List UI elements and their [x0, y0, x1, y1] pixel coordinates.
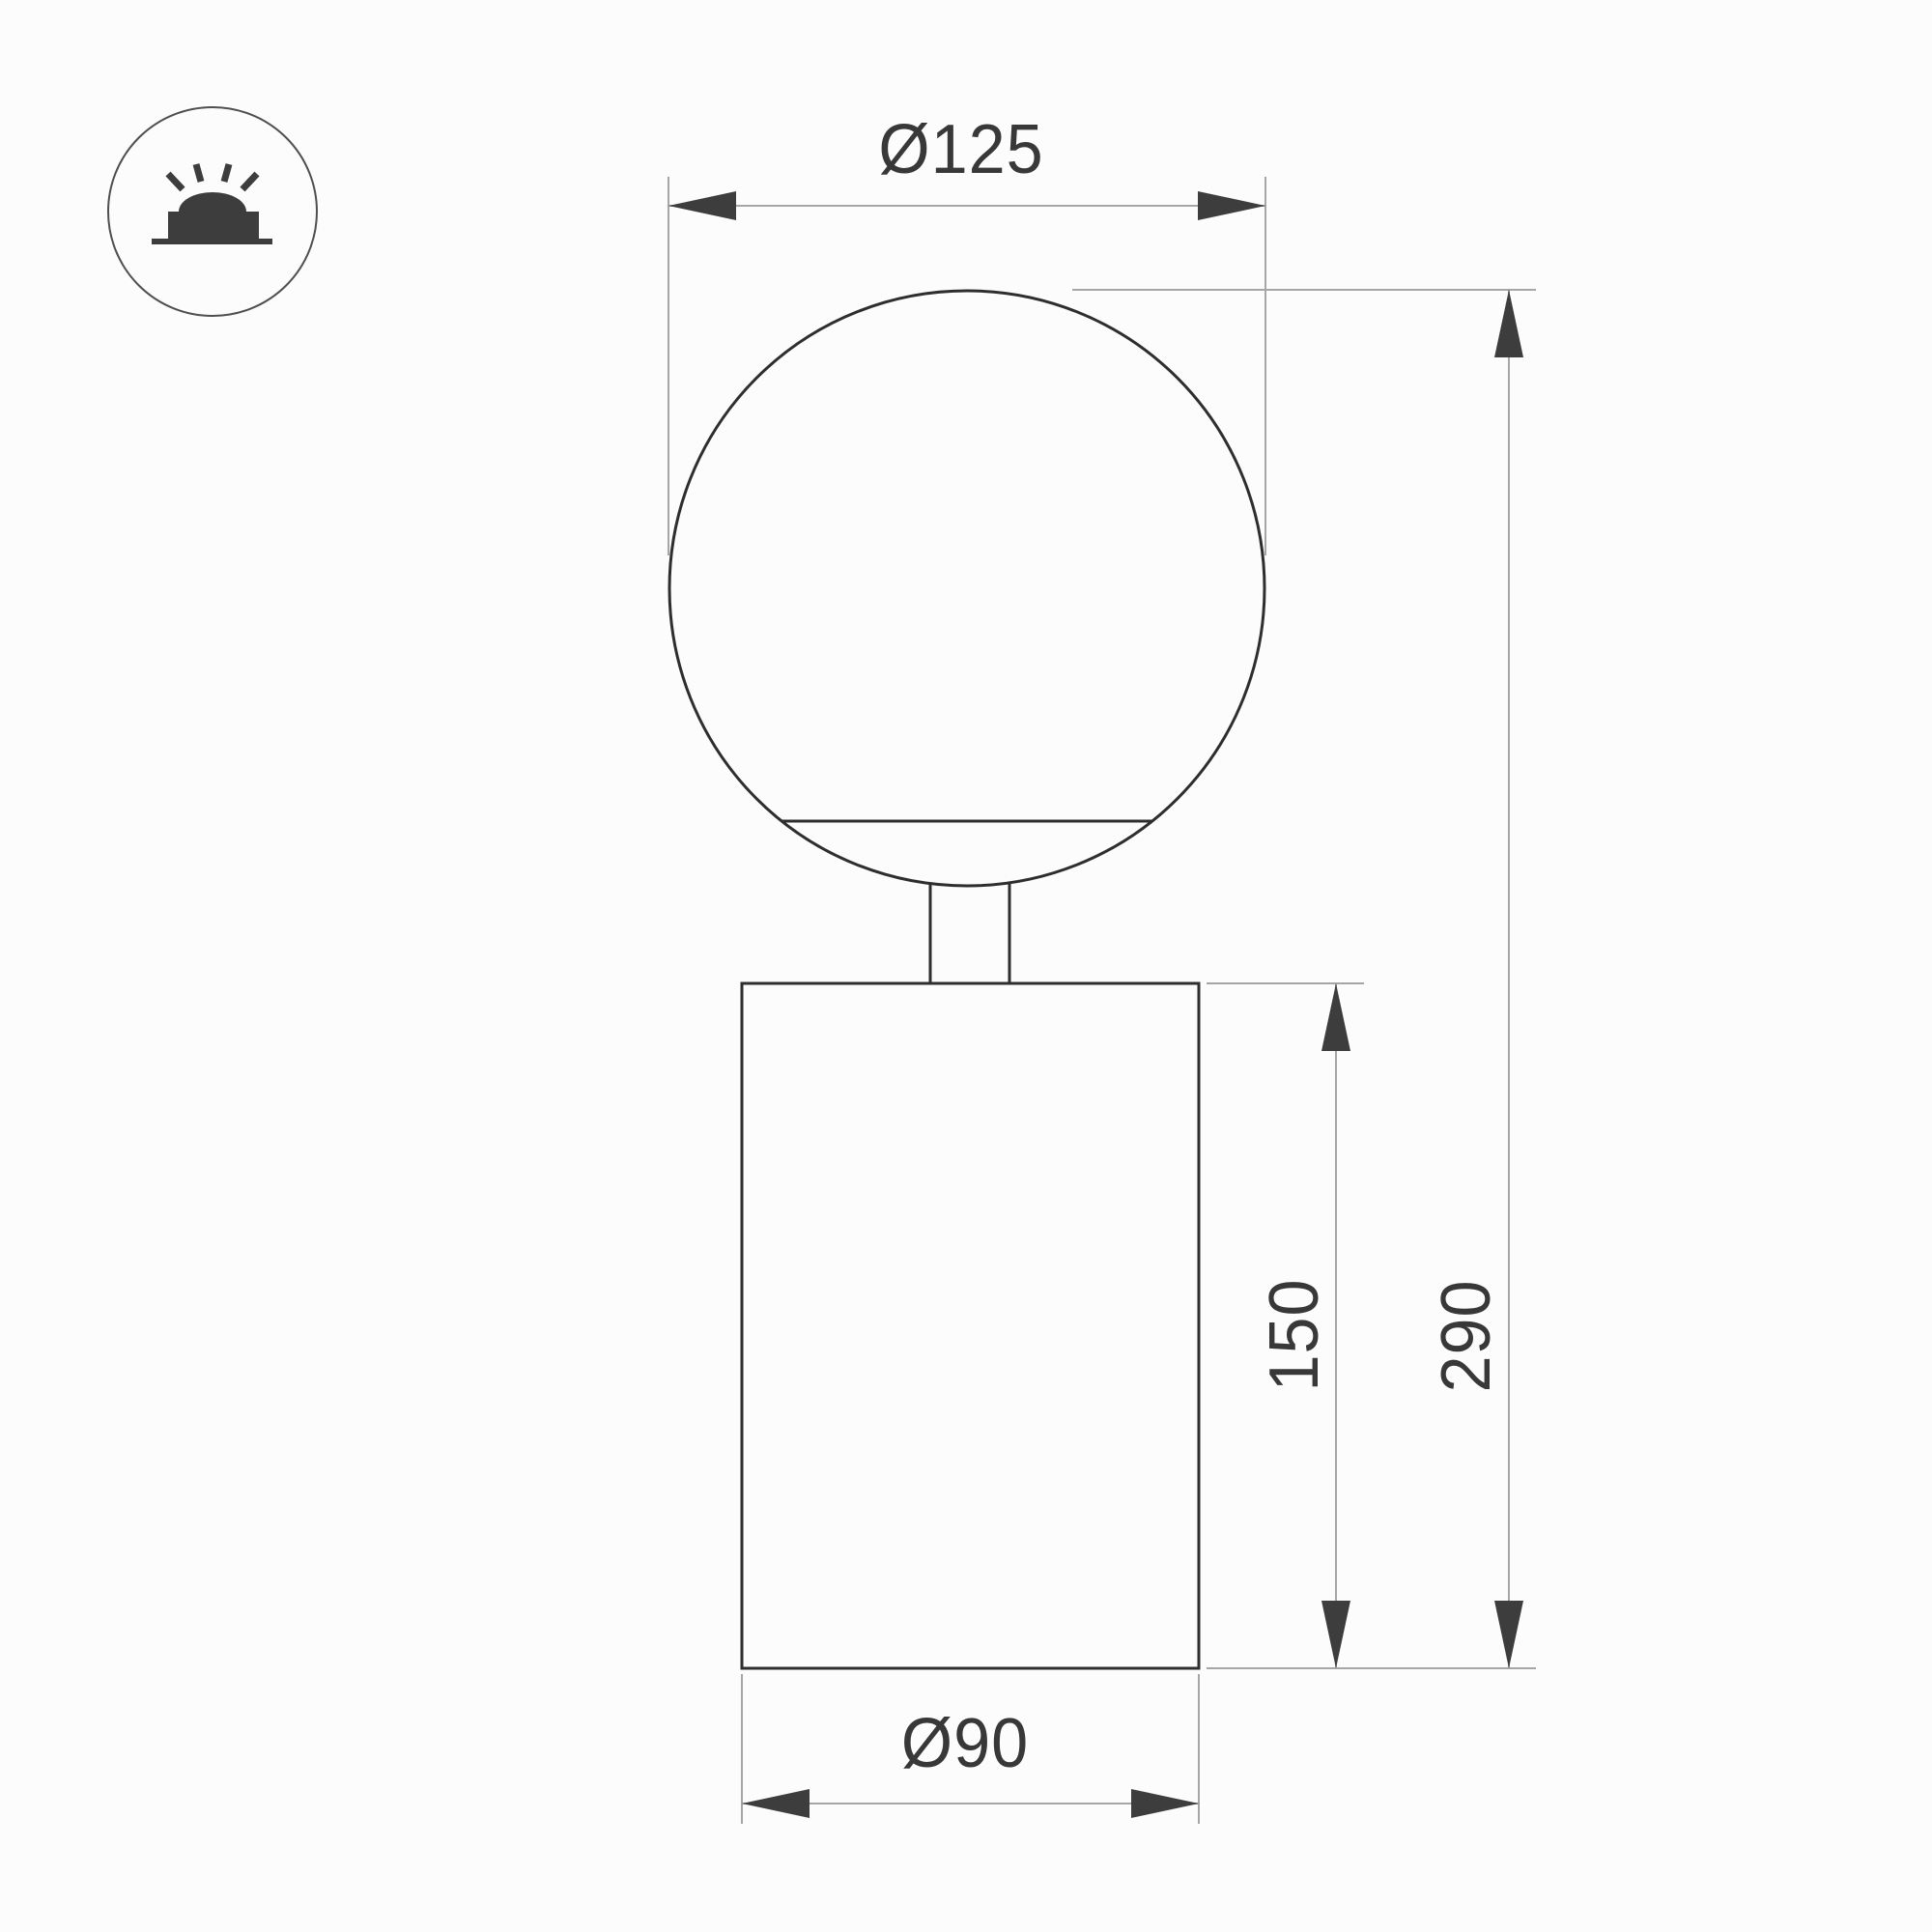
lamp-ground-line — [152, 239, 272, 244]
arrow-down-icon — [1321, 1601, 1350, 1668]
dimension-label-total-height: 290 — [1432, 1280, 1501, 1393]
lamp-base-shape — [168, 212, 259, 239]
drawing-svg — [0, 0, 1932, 1932]
dimension-label-body-height: 150 — [1260, 1279, 1329, 1392]
globe-shade-outline — [669, 291, 1264, 886]
luminaire-outline — [669, 291, 1264, 1668]
lamp-dome-shape — [179, 192, 246, 212]
arrow-right-icon — [1198, 191, 1265, 220]
dim-sphere-diameter — [668, 177, 1265, 555]
light-ray-right-inner — [224, 164, 229, 182]
light-ray-left-inner — [196, 164, 201, 182]
arrow-left-icon — [668, 191, 736, 220]
body-cylinder-outline — [742, 983, 1199, 1668]
light-ray-right-outer — [242, 174, 257, 189]
dim-total-height — [1072, 290, 1536, 1668]
technical-drawing-canvas: Ø125 290 150 Ø90 — [0, 0, 1932, 1932]
arrow-up-icon — [1321, 983, 1350, 1051]
dimension-label-body-diameter: Ø90 — [901, 1709, 1029, 1778]
arrow-down-icon — [1494, 1601, 1523, 1668]
light-rays-icon — [168, 164, 257, 189]
surface-mounted-light-icon — [152, 192, 272, 244]
arrow-up-icon — [1494, 290, 1523, 357]
arrow-right-icon — [1131, 1789, 1199, 1818]
dimension-label-sphere-diameter: Ø125 — [878, 115, 1043, 185]
mount-type-badge — [108, 107, 317, 316]
arrow-left-icon — [742, 1789, 810, 1818]
light-ray-left-outer — [168, 174, 183, 189]
